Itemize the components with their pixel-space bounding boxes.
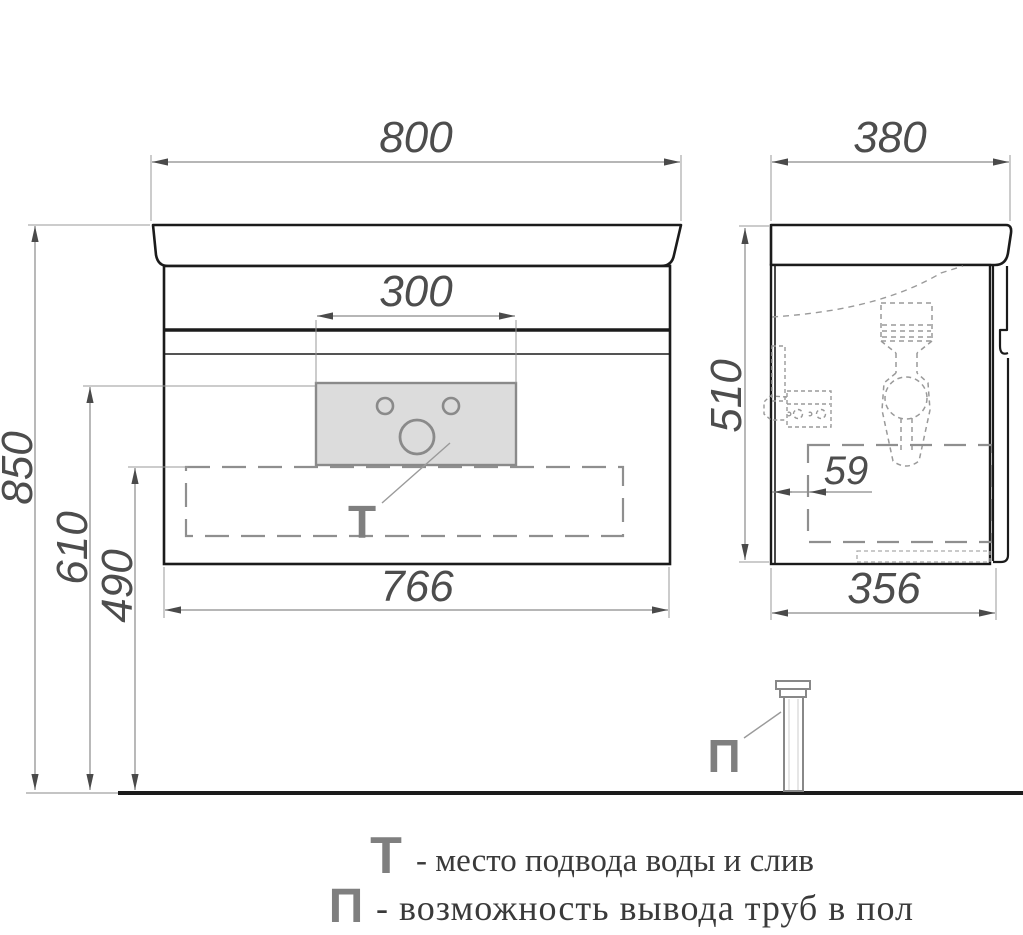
floor-and-pipe: П (26, 681, 1023, 793)
dim-510: 510 (702, 359, 751, 433)
door-front-profile (993, 266, 1008, 562)
p-marker-leader (744, 712, 781, 738)
floor-pipe (776, 681, 810, 791)
dim-356: 356 (847, 564, 921, 613)
dim-850: 850 (0, 431, 42, 505)
side-view (764, 225, 1011, 564)
vanity-dimension-drawing: Т 800 300 766 850 610 490 (0, 0, 1023, 935)
dim-490: 490 (93, 549, 142, 623)
legend-t-text: - место подвода воды и слив (416, 843, 814, 879)
front-sink-outline (153, 225, 681, 266)
legend: Т - место подвода воды и слив П - возмож… (329, 827, 914, 933)
dim-300: 300 (379, 267, 453, 316)
dim-610: 610 (48, 511, 97, 585)
legend-t-symbol: Т (370, 827, 402, 885)
legend-p-symbol: П (329, 880, 364, 933)
t-marker: Т (348, 496, 376, 548)
dim-800: 800 (379, 113, 453, 162)
side-sink-outline (771, 225, 1011, 265)
technical-drawing-page: Т 800 300 766 850 610 490 (0, 0, 1023, 935)
dim-766: 766 (380, 562, 454, 611)
dim-380: 380 (853, 113, 927, 162)
dim-59: 59 (824, 449, 869, 493)
p-marker: П (707, 730, 740, 782)
legend-p-text: - возможность вывода труб в пол (376, 888, 914, 928)
